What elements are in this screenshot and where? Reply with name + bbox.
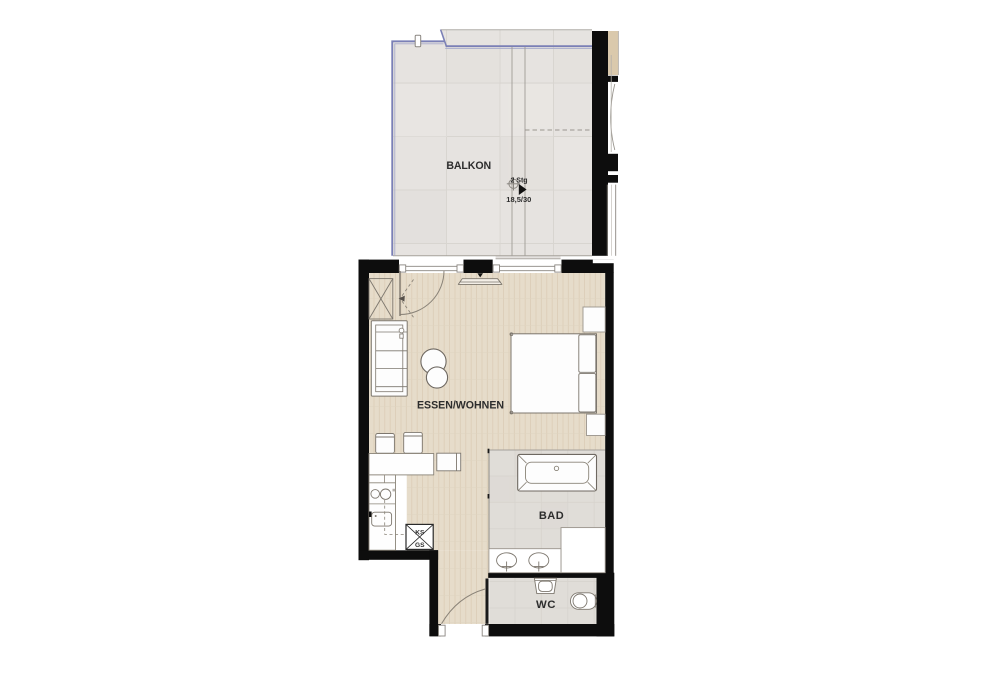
svg-text:KS: KS bbox=[415, 530, 425, 537]
svg-text:BAD: BAD bbox=[539, 510, 564, 522]
svg-text:18,5/30: 18,5/30 bbox=[506, 195, 531, 204]
svg-text:ESSEN/WOHNEN: ESSEN/WOHNEN bbox=[417, 400, 504, 412]
svg-text:BALKON: BALKON bbox=[446, 160, 491, 172]
svg-text:2 Stg: 2 Stg bbox=[510, 178, 527, 185]
svg-text:GS: GS bbox=[415, 542, 425, 549]
svg-text:WC: WC bbox=[536, 599, 556, 611]
